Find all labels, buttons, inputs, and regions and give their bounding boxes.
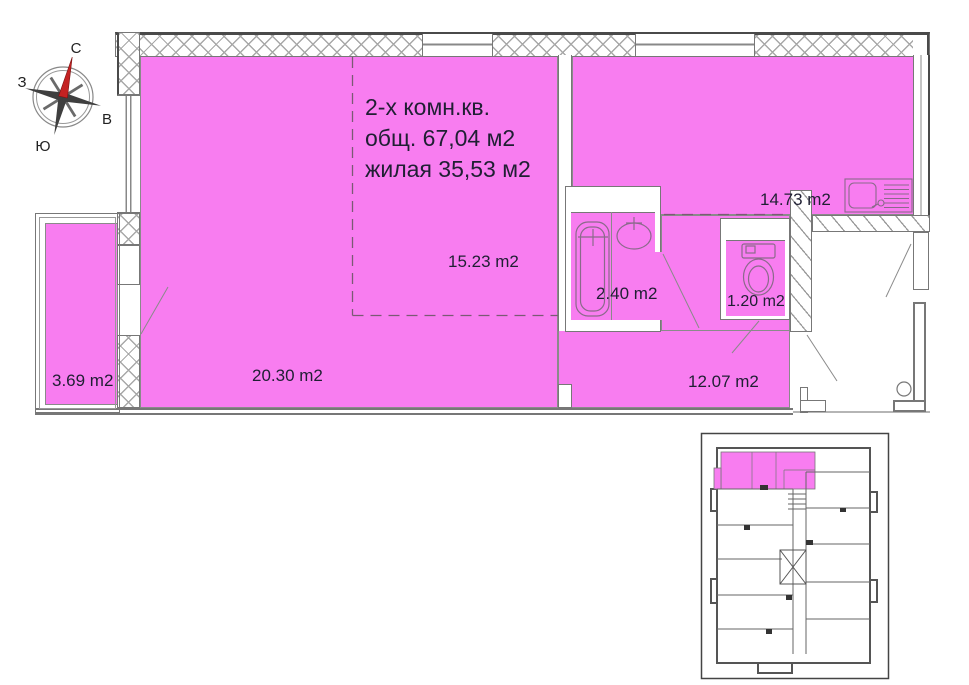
building-plan-thumbnail [700, 432, 890, 680]
right-wall-window [913, 55, 930, 215]
label-hallway-area: 12.07 m2 [688, 372, 759, 392]
left-wall-mid [117, 213, 140, 245]
top-window-1 [422, 34, 493, 56]
compass-star [16, 48, 110, 143]
right-wall-segment [913, 232, 929, 290]
label-living-room-area: 20.30 m2 [252, 366, 323, 386]
compass-label-north: С [71, 40, 82, 57]
apartment-title: 2-х комн.кв. общ. 67,04 м2 жилая 35,53 м… [365, 92, 531, 185]
top-wall-end [913, 35, 929, 56]
kitchen-hatched-strip [812, 215, 930, 232]
label-wc-area: 1.20 m2 [727, 293, 785, 311]
bottom-wall [35, 408, 793, 415]
compass-label-east: В [102, 111, 112, 128]
label-bathroom-area: 2.40 m2 [596, 284, 657, 304]
entrance-door-knob-icon [897, 382, 911, 396]
label-bedroom-area: 15.23 m2 [448, 252, 519, 272]
top-wall [115, 32, 930, 57]
compass-label-south: Ю [35, 138, 50, 155]
top-window-2 [635, 34, 755, 56]
compass-label-west: З [17, 74, 26, 91]
compass-rose: С З В Ю [10, 34, 120, 156]
left-wall-lower [117, 335, 140, 408]
thumbnail-highlight [714, 452, 815, 489]
lobby-wall-stub-h [800, 400, 826, 412]
left-window [117, 95, 140, 213]
divider-wall-stub [558, 384, 572, 408]
stair-lobby-wall-horizontal [893, 400, 926, 412]
hallway-lower-area [558, 330, 790, 408]
left-wall-upper [117, 32, 140, 95]
apartment-total-area: общ. 67,04 м2 [365, 123, 531, 154]
apartment-living-area: жилая 35,53 м2 [365, 154, 531, 185]
apartment-type: 2-х комн.кв. [365, 92, 531, 123]
entrance-hatched-wall [790, 190, 812, 332]
floor-plan-page: 2-х комн.кв. общ. 67,04 м2 жилая 35,53 м… [0, 0, 969, 685]
label-balcony-area: 3.69 m2 [52, 371, 113, 391]
label-kitchen-area: 14.73 m2 [760, 190, 831, 210]
stair-lobby-wall-vertical [913, 302, 926, 402]
left-wall-pier [117, 245, 140, 285]
